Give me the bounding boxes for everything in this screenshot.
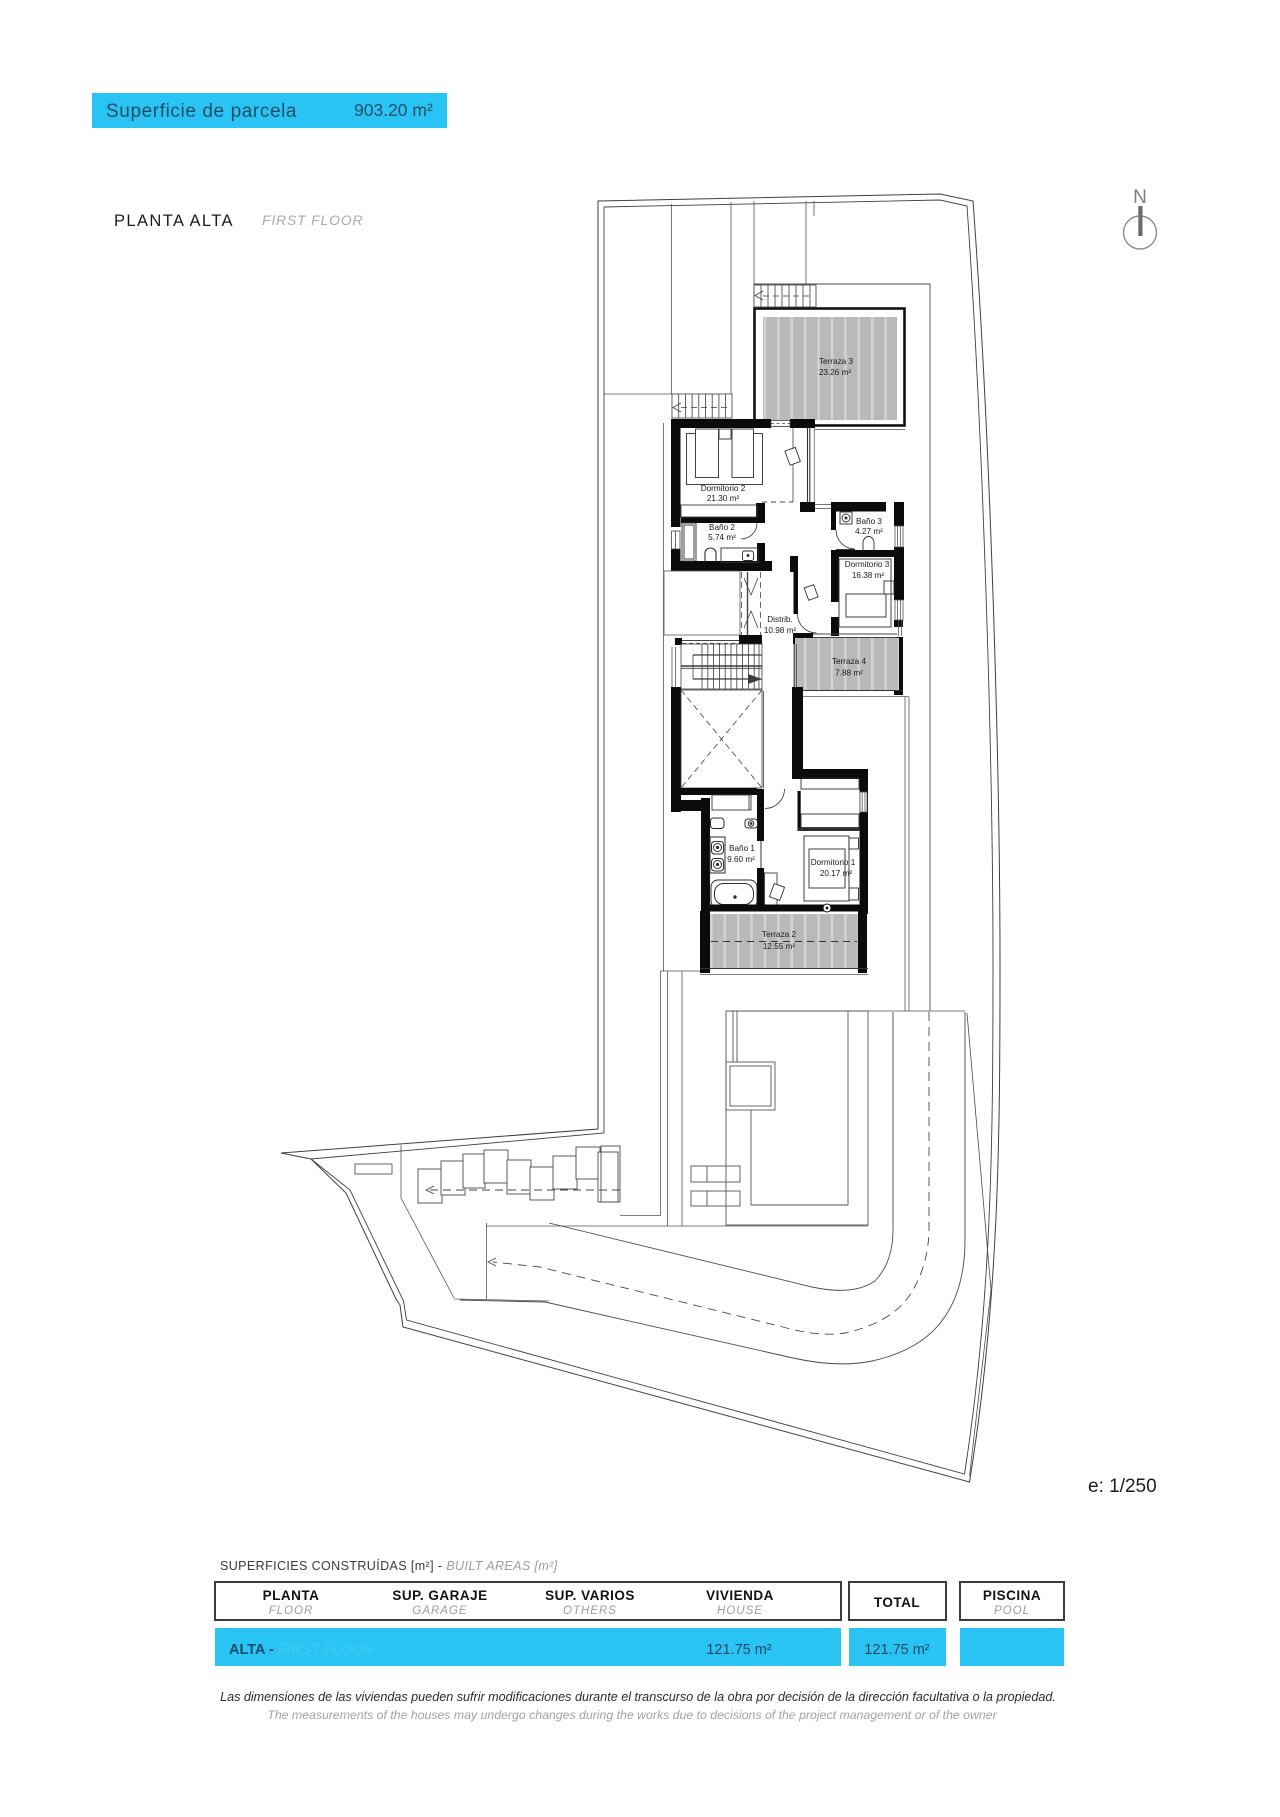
svg-text:Superficie de parcela: Superficie de parcela <box>106 101 297 122</box>
svg-text:21.30 m²: 21.30 m² <box>707 494 740 503</box>
svg-text:903.20 m²: 903.20 m² <box>354 100 433 120</box>
svg-text:HOUSE: HOUSE <box>717 1605 763 1617</box>
svg-text:Dormitorio 2: Dormitorio 2 <box>701 484 746 493</box>
svg-text:SUPERFICIES CONSTRUÍDAS [m²] -: SUPERFICIES CONSTRUÍDAS [m²] - BUILT ARE… <box>220 1558 558 1573</box>
svg-text:9.60 m²: 9.60 m² <box>727 855 755 864</box>
svg-text:Baño 3: Baño 3 <box>856 517 882 526</box>
svg-text:FIRST FLOOR: FIRST FLOOR <box>262 212 363 228</box>
svg-text:Dormitorio 1: Dormitorio 1 <box>811 858 856 867</box>
svg-text:SUP. VARIOS: SUP. VARIOS <box>545 1588 635 1603</box>
svg-text:N: N <box>1133 187 1147 208</box>
svg-text:Dormitorio 3: Dormitorio 3 <box>845 560 890 569</box>
svg-text:Terraza 2: Terraza 2 <box>762 930 797 939</box>
svg-text:121.75 m²: 121.75 m² <box>706 1642 771 1658</box>
svg-text:4.27 m²: 4.27 m² <box>855 527 883 536</box>
svg-text:121.75 m²: 121.75 m² <box>864 1642 929 1658</box>
svg-text:20.17 m²: 20.17 m² <box>820 869 853 878</box>
svg-text:The measurements of the houses: The measurements of the houses may under… <box>267 1708 997 1722</box>
svg-text:TOTAL: TOTAL <box>874 1595 920 1610</box>
svg-text:23.26 m²: 23.26 m² <box>819 368 852 377</box>
svg-text:GARAGE: GARAGE <box>412 1605 467 1617</box>
svg-text:Baño 2: Baño 2 <box>709 523 735 532</box>
svg-text:Baño 1: Baño 1 <box>729 844 755 853</box>
svg-text:7.88 m²: 7.88 m² <box>835 669 863 678</box>
svg-text:FLOOR: FLOOR <box>269 1605 314 1617</box>
svg-text:Distrib.: Distrib. <box>767 615 792 624</box>
svg-text:OTHERS: OTHERS <box>563 1605 617 1617</box>
svg-text:PISCINA: PISCINA <box>983 1588 1041 1603</box>
svg-text:16.38 m²: 16.38 m² <box>852 571 885 580</box>
svg-text:e: 1/250: e: 1/250 <box>1088 1476 1157 1497</box>
svg-text:POOL: POOL <box>994 1605 1030 1617</box>
svg-text:PLANTA ALTA: PLANTA ALTA <box>114 212 234 230</box>
svg-text:10.98 m²: 10.98 m² <box>764 626 797 635</box>
svg-text:VIVIENDA: VIVIENDA <box>706 1588 774 1603</box>
svg-text:Terraza 4: Terraza 4 <box>832 657 867 666</box>
svg-text:12.55 m²: 12.55 m² <box>763 942 796 951</box>
svg-text:Terraza 3: Terraza 3 <box>819 357 854 366</box>
svg-text:PLANTA: PLANTA <box>263 1588 320 1603</box>
svg-text:SUP. GARAJE: SUP. GARAJE <box>392 1588 487 1603</box>
svg-text:ALTA - FIRST FLOOR: ALTA - FIRST FLOOR <box>229 1642 374 1658</box>
svg-text:Las dimensiones de las viviend: Las dimensiones de las viviendas pueden … <box>220 1690 1056 1704</box>
svg-text:5.74 m²: 5.74 m² <box>708 533 736 542</box>
